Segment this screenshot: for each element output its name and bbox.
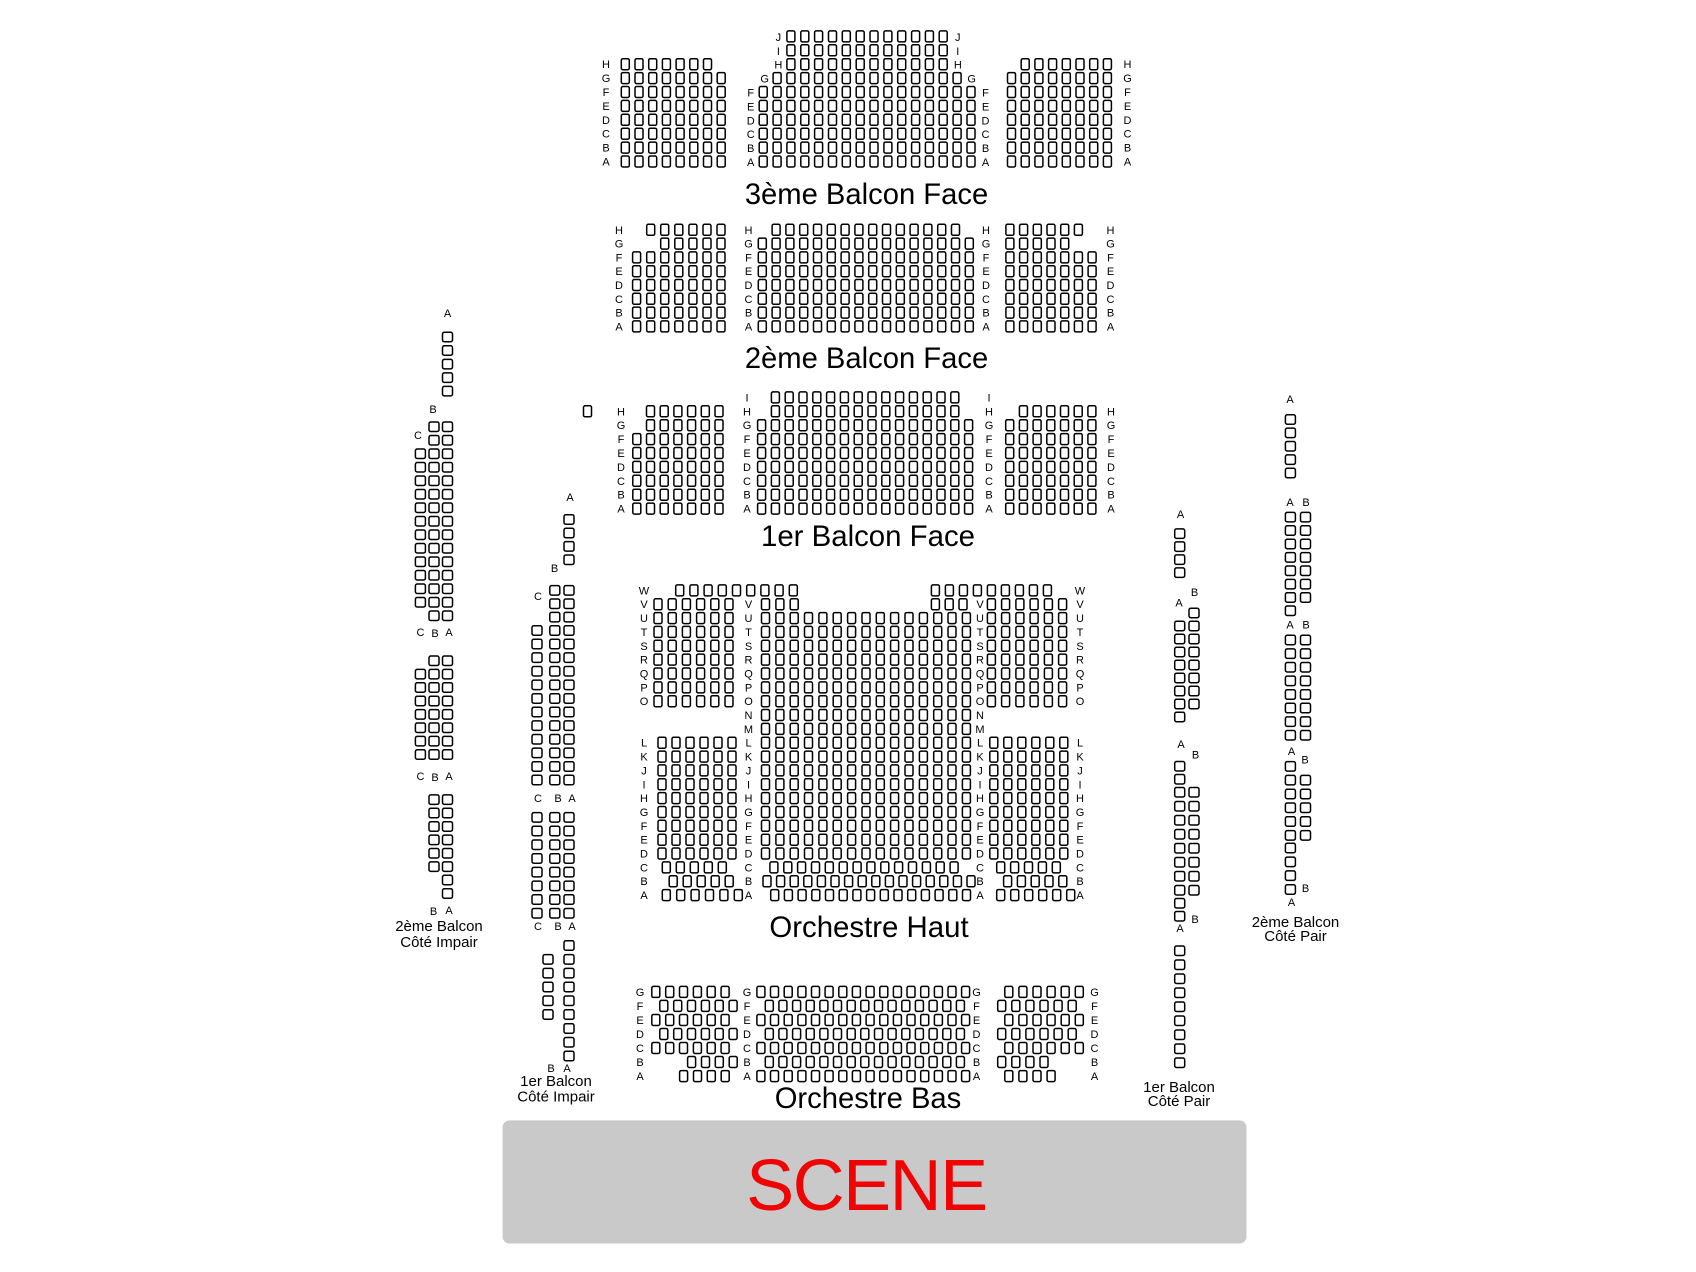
svg-text:T: T [977,627,984,639]
svg-text:G: G [744,239,753,251]
svg-text:M: M [744,724,753,736]
svg-text:B: B [554,793,561,805]
svg-text:A: A [1175,598,1183,610]
svg-text:F: F [977,821,984,833]
svg-text:G: G [640,807,649,819]
svg-text:G: G [1076,807,1085,819]
svg-text:R: R [640,655,648,667]
svg-text:F: F [1108,434,1115,446]
svg-text:A: A [568,793,576,805]
svg-text:L: L [1077,738,1083,750]
svg-text:C: C [636,1043,644,1055]
svg-text:F: F [616,252,623,264]
svg-text:L: L [745,738,751,750]
svg-text:V: V [976,599,984,611]
svg-text:H: H [640,793,648,805]
svg-text:E: E [747,101,754,113]
svg-text:D: D [985,462,993,474]
svg-text:B: B [431,628,438,640]
svg-text:D: D [1107,280,1115,292]
svg-text:A: A [745,890,753,902]
svg-text:G: G [1123,73,1132,85]
svg-text:C: C [617,476,625,488]
svg-text:F: F [1077,821,1084,833]
svg-text:D: D [1076,849,1084,861]
svg-text:B: B [743,1057,750,1069]
svg-text:E: E [1076,835,1083,847]
svg-text:D: D [745,849,753,861]
svg-text:Côté Impair: Côté Impair [400,934,478,951]
svg-text:2ème Balcon: 2ème Balcon [395,918,483,935]
svg-text:D: D [982,115,990,127]
svg-text:Orchestre Bas: Orchestre Bas [775,1083,962,1115]
svg-text:T: T [745,627,752,639]
svg-text:B: B [982,143,989,155]
svg-text:A: A [1107,504,1115,516]
svg-text:F: F [745,821,752,833]
svg-text:C: C [976,862,984,874]
svg-text:J: J [977,765,983,777]
svg-text:F: F [745,252,752,264]
svg-text:I: I [642,779,645,791]
svg-text:A: A [615,321,623,333]
svg-text:I: I [777,46,780,58]
svg-text:G: G [743,420,752,432]
svg-text:V: V [640,599,648,611]
svg-text:K: K [640,752,648,764]
svg-text:H: H [615,225,623,237]
svg-text:A: A [1288,746,1296,758]
svg-text:C: C [602,129,610,141]
svg-text:Q: Q [640,669,649,681]
svg-text:C: C [747,129,755,141]
svg-text:B: B [1091,1057,1098,1069]
svg-text:A: A [445,627,453,639]
svg-text:D: D [1091,1029,1099,1041]
svg-text:U: U [1076,613,1084,625]
svg-text:A: A [568,921,576,933]
svg-text:C: C [745,862,753,874]
svg-text:S: S [976,641,983,653]
svg-text:A: A [976,890,984,902]
svg-text:A: A [747,157,755,169]
svg-text:F: F [983,252,990,264]
svg-text:B: B [1124,143,1131,155]
svg-text:J: J [1077,765,1083,777]
svg-text:B: B [615,308,622,320]
svg-text:C: C [1124,129,1132,141]
svg-text:A: A [1091,1071,1099,1083]
svg-text:I: I [956,46,959,58]
svg-text:R: R [745,655,753,667]
svg-text:H: H [774,60,782,72]
svg-text:B: B [602,143,609,155]
svg-text:F: F [637,1001,644,1013]
svg-text:A: A [1124,157,1132,169]
svg-text:H: H [743,406,751,418]
svg-text:L: L [641,738,647,750]
svg-text:G: G [636,987,645,999]
svg-text:E: E [602,101,609,113]
svg-text:P: P [1076,682,1083,694]
svg-text:U: U [976,613,984,625]
svg-text:I: I [1078,779,1081,791]
svg-text:D: D [615,280,623,292]
svg-text:D: D [743,462,751,474]
svg-text:B: B [551,563,558,575]
svg-text:B: B [429,404,436,416]
svg-text:C: C [414,430,422,442]
svg-text:V: V [1076,599,1084,611]
svg-text:H: H [745,793,753,805]
svg-text:B: B [976,876,983,888]
svg-text:H: H [954,60,962,72]
svg-text:H: H [745,225,753,237]
svg-text:C: C [1091,1043,1099,1055]
svg-text:R: R [976,655,984,667]
svg-text:S: S [1076,641,1083,653]
svg-text:B: B [1302,620,1309,632]
svg-text:B: B [1192,750,1199,762]
svg-text:I: I [987,392,990,404]
svg-text:D: D [747,115,755,127]
svg-text:E: E [1107,448,1114,460]
svg-text:B: B [747,143,754,155]
svg-text:A: A [566,492,574,504]
svg-text:E: E [743,448,750,460]
svg-text:A: A [444,308,452,320]
svg-text:H: H [1107,225,1115,237]
svg-text:W: W [1075,585,1086,597]
svg-text:H: H [1076,793,1084,805]
svg-text:H: H [602,59,610,71]
svg-text:B: B [617,490,624,502]
svg-text:A: A [1286,497,1294,509]
svg-text:B: B [1107,308,1114,320]
svg-text:B: B [430,906,437,918]
svg-text:B: B [1302,497,1309,509]
svg-text:C: C [1107,294,1115,306]
svg-text:B: B [1107,490,1114,502]
svg-text:C: C [1107,476,1115,488]
svg-text:D: D [973,1029,981,1041]
svg-text:A: A [1107,321,1115,333]
svg-text:C: C [743,476,751,488]
svg-text:Q: Q [1076,669,1085,681]
svg-text:O: O [976,696,985,708]
svg-text:D: D [636,1029,644,1041]
svg-text:G: G [602,73,611,85]
svg-text:E: E [745,835,752,847]
svg-text:A: A [445,905,453,917]
svg-text:E: E [982,266,989,278]
svg-text:E: E [743,1015,750,1027]
svg-text:E: E [615,266,622,278]
svg-text:C: C [417,627,425,639]
svg-text:G: G [972,987,981,999]
svg-text:Q: Q [744,669,753,681]
svg-text:B: B [1191,914,1198,926]
svg-text:C: C [973,1043,981,1055]
svg-text:P: P [745,682,752,694]
svg-text:E: E [617,448,624,460]
svg-text:Côté Pair: Côté Pair [1148,1093,1211,1110]
svg-text:C: C [743,1043,751,1055]
svg-text:E: E [976,835,983,847]
svg-text:B: B [982,308,989,320]
svg-text:A: A [602,157,610,169]
svg-text:G: G [982,239,991,251]
svg-text:C: C [534,793,542,805]
svg-text:S: S [745,641,752,653]
svg-text:Q: Q [976,669,985,681]
svg-text:A: A [636,1071,644,1083]
svg-text:G: G [617,420,626,432]
svg-text:E: E [640,835,647,847]
svg-text:G: G [744,807,753,819]
svg-text:F: F [744,434,751,446]
svg-text:C: C [982,129,990,141]
svg-text:G: G [1107,420,1116,432]
svg-text:A: A [617,504,625,516]
svg-text:O: O [744,696,753,708]
svg-text:C: C [417,771,425,783]
svg-text:B: B [640,876,647,888]
svg-text:H: H [985,406,993,418]
svg-text:E: E [982,101,989,113]
svg-text:A: A [982,157,990,169]
svg-text:E: E [1124,101,1131,113]
svg-text:D: D [617,462,625,474]
svg-text:A: A [1286,394,1294,406]
svg-text:K: K [745,752,753,764]
svg-text:A: A [745,321,753,333]
svg-text:A: A [985,504,993,516]
svg-text:F: F [982,88,989,100]
svg-text:J: J [746,765,752,777]
svg-text:H: H [982,225,990,237]
svg-text:1er Balcon: 1er Balcon [520,1073,592,1090]
svg-text:T: T [1077,627,1084,639]
svg-text:S: S [640,641,647,653]
svg-text:A: A [1177,739,1185,751]
svg-text:F: F [747,88,754,100]
svg-text:V: V [745,599,753,611]
svg-text:E: E [1091,1015,1098,1027]
svg-text:B: B [743,490,750,502]
svg-text:B: B [636,1057,643,1069]
svg-text:P: P [640,682,647,694]
svg-text:B: B [431,772,438,784]
svg-text:N: N [976,710,984,722]
svg-text:F: F [1124,87,1131,99]
svg-text:F: F [641,821,648,833]
svg-text:C: C [615,294,623,306]
svg-text:B: B [1302,883,1309,895]
svg-text:F: F [744,1001,751,1013]
svg-text:G: G [743,987,752,999]
svg-text:C: C [534,921,542,933]
svg-text:F: F [603,87,610,99]
svg-text:P: P [976,682,983,694]
svg-text:I: I [745,392,748,404]
svg-text:K: K [976,752,984,764]
svg-text:D: D [743,1029,751,1041]
svg-text:B: B [973,1057,980,1069]
svg-text:C: C [1076,862,1084,874]
svg-text:C: C [640,862,648,874]
svg-text:H: H [976,793,984,805]
svg-text:E: E [973,1015,980,1027]
svg-text:I: I [978,779,981,791]
svg-text:G: G [985,420,994,432]
svg-text:A: A [743,504,751,516]
svg-text:G: G [1106,239,1115,251]
svg-text:A: A [1286,620,1294,632]
svg-text:L: L [977,738,983,750]
svg-text:F: F [973,1001,980,1013]
svg-text:1er Balcon Face: 1er Balcon Face [761,520,975,553]
svg-text:I: I [747,779,750,791]
svg-text:C: C [534,591,542,603]
svg-text:G: G [615,239,624,251]
svg-text:C: C [985,476,993,488]
svg-text:A: A [1288,897,1296,909]
svg-text:D: D [640,849,648,861]
svg-text:G: G [1090,987,1099,999]
svg-text:U: U [745,613,753,625]
svg-text:E: E [985,448,992,460]
svg-text:B: B [745,876,752,888]
svg-text:2ème Balcon Face: 2ème Balcon Face [745,343,988,375]
svg-text:A: A [1076,890,1084,902]
svg-text:F: F [1107,252,1114,264]
svg-text:H: H [1107,406,1115,418]
svg-text:K: K [1076,752,1084,764]
svg-text:H: H [617,406,625,418]
svg-text:SCENE: SCENE [746,1146,987,1226]
svg-text:B: B [745,308,752,320]
svg-text:A: A [1177,509,1185,521]
svg-text:G: G [760,74,769,86]
svg-text:B: B [985,490,992,502]
svg-text:D: D [745,280,753,292]
svg-text:R: R [1076,655,1084,667]
svg-text:B: B [1191,587,1198,599]
svg-text:O: O [1076,696,1085,708]
svg-text:A: A [1176,923,1184,935]
svg-text:E: E [1107,266,1114,278]
svg-text:3ème Balcon Face: 3ème Balcon Face [745,179,988,211]
svg-text:E: E [745,266,752,278]
svg-text:D: D [982,280,990,292]
svg-text:C: C [745,294,753,306]
svg-text:N: N [745,710,753,722]
svg-text:D: D [1107,462,1115,474]
svg-text:J: J [955,32,961,44]
svg-text:Côté Impair: Côté Impair [517,1089,595,1106]
svg-text:G: G [976,807,985,819]
svg-text:U: U [640,613,648,625]
svg-text:B: B [1076,876,1083,888]
svg-text:D: D [976,849,984,861]
svg-text:H: H [1124,59,1132,71]
svg-text:E: E [636,1015,643,1027]
svg-text:A: A [640,890,648,902]
svg-text:F: F [618,434,625,446]
svg-text:G: G [967,74,976,86]
svg-text:A: A [973,1071,981,1083]
svg-text:Orchestre Haut: Orchestre Haut [769,911,968,944]
svg-text:J: J [641,765,647,777]
svg-text:D: D [602,115,610,127]
svg-text:B: B [1301,755,1308,767]
svg-text:W: W [639,585,650,597]
svg-text:F: F [986,434,993,446]
svg-text:J: J [776,32,782,44]
svg-text:T: T [641,627,648,639]
svg-text:C: C [982,294,990,306]
svg-text:F: F [1091,1001,1098,1013]
svg-text:A: A [982,321,990,333]
svg-text:A: A [743,1071,751,1083]
svg-text:M: M [975,724,984,736]
svg-text:Côté Pair: Côté Pair [1264,928,1327,945]
svg-text:B: B [554,921,561,933]
svg-text:O: O [640,696,649,708]
svg-text:D: D [1124,115,1132,127]
svg-text:A: A [445,771,453,783]
